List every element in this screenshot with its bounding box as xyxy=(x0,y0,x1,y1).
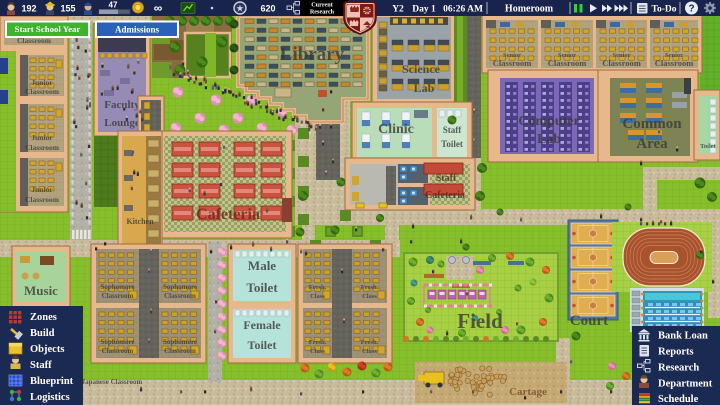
svg-text:Toilet: Toilet xyxy=(246,280,278,295)
svg-text:Clinic: Clinic xyxy=(378,122,414,137)
svg-text:Classroom: Classroom xyxy=(548,58,587,68)
svg-text:Class: Class xyxy=(310,348,325,355)
svg-text:Department: Department xyxy=(658,379,713,390)
svg-text:Start School Year: Start School Year xyxy=(15,24,81,34)
svg-text:Blueprint: Blueprint xyxy=(30,376,74,387)
svg-text:Sophomore: Sophomore xyxy=(100,338,134,346)
svg-text:Junior: Junior xyxy=(31,133,53,142)
svg-text:Cafeteria: Cafeteria xyxy=(425,190,465,201)
svg-text:Common: Common xyxy=(622,116,682,132)
svg-text:Computer: Computer xyxy=(518,114,579,129)
svg-text:Class: Class xyxy=(362,348,377,355)
svg-text:Research: Research xyxy=(310,9,335,16)
svg-text:Kitchen: Kitchen xyxy=(126,217,154,226)
svg-text:Field: Field xyxy=(457,309,503,333)
svg-text:Sophomore: Sophomore xyxy=(163,283,197,291)
svg-text:Toilet: Toilet xyxy=(700,143,716,150)
svg-text:47: 47 xyxy=(109,1,118,10)
svg-text:Zones: Zones xyxy=(30,312,57,323)
svg-text:∞: ∞ xyxy=(154,1,163,15)
svg-text:Class: Class xyxy=(310,293,325,300)
svg-text:Reports: Reports xyxy=(658,347,694,358)
svg-text:Current: Current xyxy=(311,2,333,9)
svg-text:192: 192 xyxy=(21,4,36,14)
svg-text:Classroom: Classroom xyxy=(164,292,196,300)
svg-text:Science: Science xyxy=(402,62,441,76)
svg-text:06:26 AM: 06:26 AM xyxy=(443,5,483,15)
svg-text:Cafeteria: Cafeteria xyxy=(196,206,260,223)
svg-text:Classroom: Classroom xyxy=(102,292,134,300)
svg-text:Objects: Objects xyxy=(30,344,64,355)
svg-text:★: ★ xyxy=(236,4,244,13)
svg-text:Class: Class xyxy=(362,293,377,300)
svg-text:Classroom: Classroom xyxy=(102,347,134,355)
svg-text:Fresh.: Fresh. xyxy=(361,339,379,346)
svg-text:Classroom: Classroom xyxy=(25,143,60,152)
svg-text:Junior: Junior xyxy=(31,78,53,87)
svg-text:Staff: Staff xyxy=(30,360,52,371)
svg-text:Day 1: Day 1 xyxy=(412,5,436,15)
svg-text:To-Do: To-Do xyxy=(652,5,677,15)
svg-text:Admissions: Admissions xyxy=(115,25,160,35)
svg-text:Japanese Classroom: Japanese Classroom xyxy=(82,378,143,386)
svg-text:Logistics: Logistics xyxy=(30,392,70,403)
svg-text:Sophomore: Sophomore xyxy=(100,283,134,291)
svg-text:Lab: Lab xyxy=(414,81,435,95)
svg-text:Schedule: Schedule xyxy=(658,394,699,405)
svg-text:Staff: Staff xyxy=(436,173,457,184)
svg-text:Male: Male xyxy=(248,258,276,273)
svg-text:Classroom: Classroom xyxy=(25,87,60,96)
svg-text:Toilet: Toilet xyxy=(248,338,277,352)
svg-text:Lab: Lab xyxy=(537,132,561,147)
svg-text:Research: Research xyxy=(658,363,699,374)
svg-text:Court: Court xyxy=(570,313,608,329)
svg-text:Classroom: Classroom xyxy=(25,195,60,204)
svg-text:Sophomore: Sophomore xyxy=(163,338,197,346)
svg-text:Area: Area xyxy=(636,136,668,152)
svg-text:155: 155 xyxy=(60,4,75,14)
svg-text:Library: Library xyxy=(280,44,345,65)
svg-text:Cartage: Cartage xyxy=(509,386,547,398)
svg-text:?: ? xyxy=(688,4,694,15)
svg-text:Junior: Junior xyxy=(31,185,53,194)
svg-text:620: 620 xyxy=(260,4,275,14)
svg-text:Homeroom: Homeroom xyxy=(505,4,554,15)
svg-text:Bank Loan: Bank Loan xyxy=(658,331,708,342)
svg-text:Faculty: Faculty xyxy=(104,99,140,111)
svg-text:Staff: Staff xyxy=(443,125,462,135)
svg-text:Classroom: Classroom xyxy=(164,347,196,355)
svg-text:Music: Music xyxy=(24,283,58,298)
svg-text:Fresh.: Fresh. xyxy=(309,284,327,291)
svg-text:Classroom: Classroom xyxy=(655,58,694,68)
svg-text:Female: Female xyxy=(243,318,281,332)
svg-text:Classroom: Classroom xyxy=(493,58,532,68)
svg-text:Classroom: Classroom xyxy=(602,58,641,68)
svg-text:Lounge: Lounge xyxy=(104,117,140,129)
svg-text:Fresh.: Fresh. xyxy=(361,284,379,291)
svg-text:Toilet: Toilet xyxy=(441,139,463,149)
svg-text:Build: Build xyxy=(30,328,55,339)
svg-text:Fresh.: Fresh. xyxy=(309,339,327,346)
svg-text:Y2: Y2 xyxy=(392,5,404,15)
